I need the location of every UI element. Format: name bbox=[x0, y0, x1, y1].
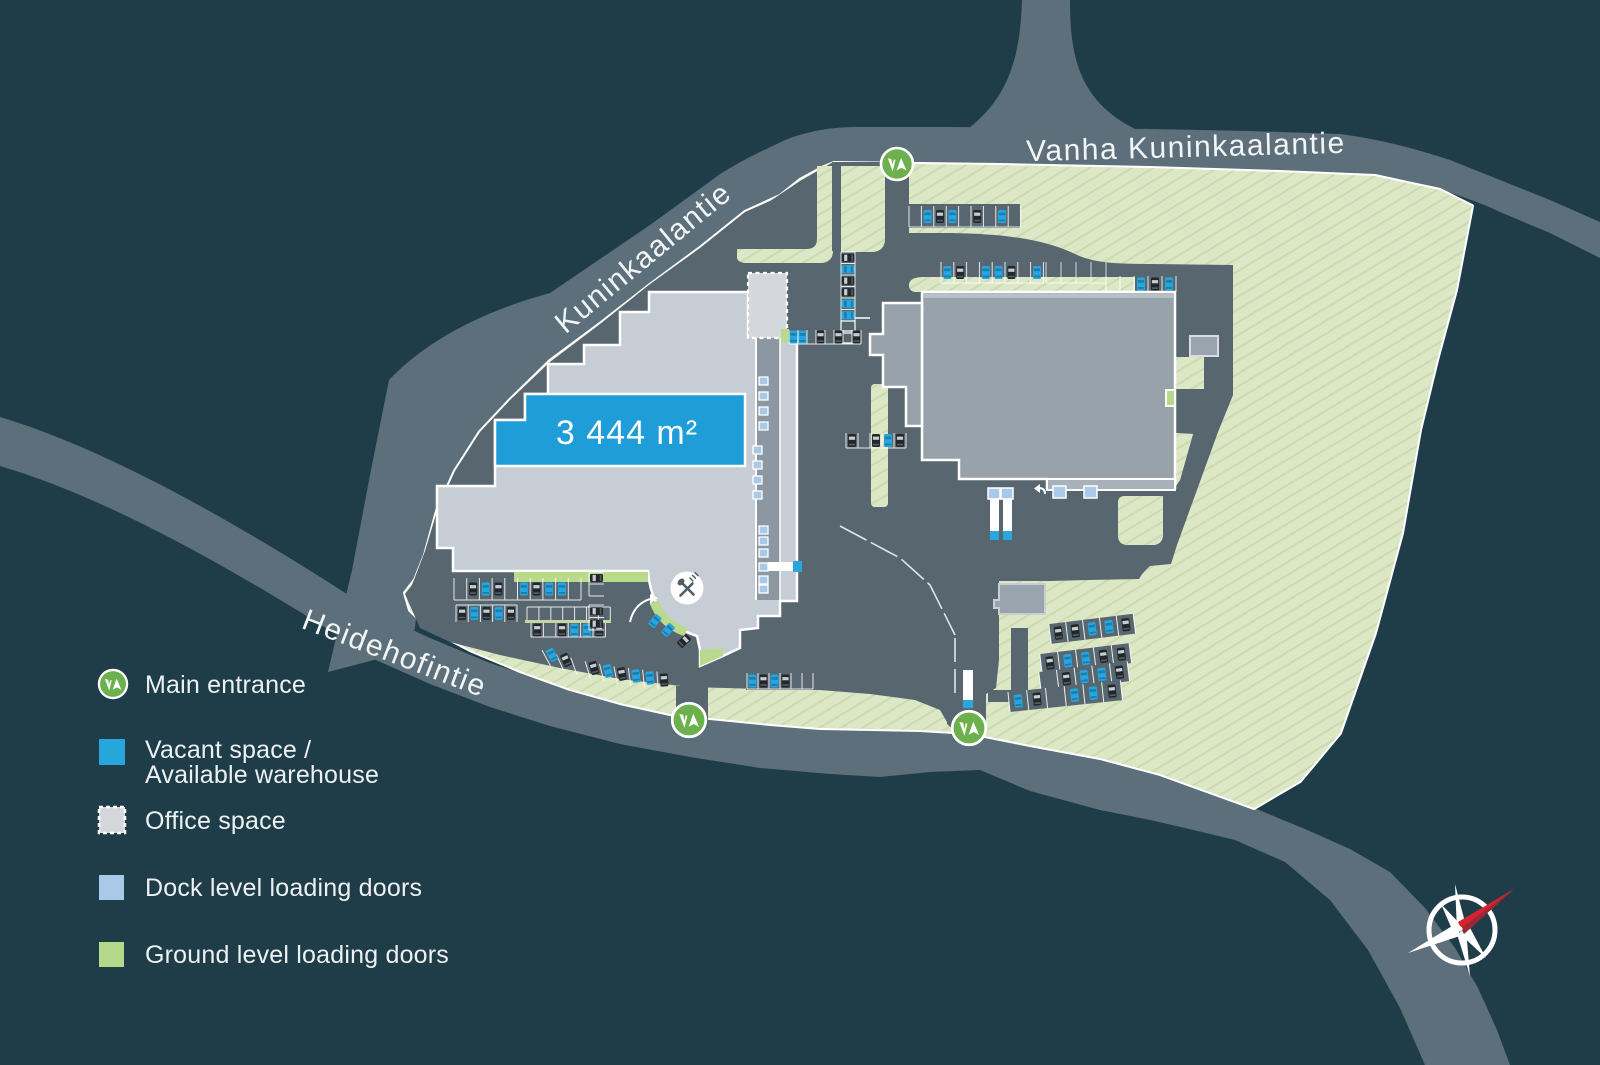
svg-text:Ground level loading doors: Ground level loading doors bbox=[145, 941, 449, 969]
svg-text:Available warehouse: Available warehouse bbox=[145, 761, 379, 789]
svg-text:Vacant space /: Vacant space / bbox=[145, 736, 311, 764]
svg-text:Office space: Office space bbox=[145, 807, 286, 835]
svg-text:Main entrance: Main entrance bbox=[145, 671, 306, 699]
svg-text:3 444 m²: 3 444 m² bbox=[556, 414, 698, 452]
svg-text:Dock level loading doors: Dock level loading doors bbox=[145, 874, 422, 902]
